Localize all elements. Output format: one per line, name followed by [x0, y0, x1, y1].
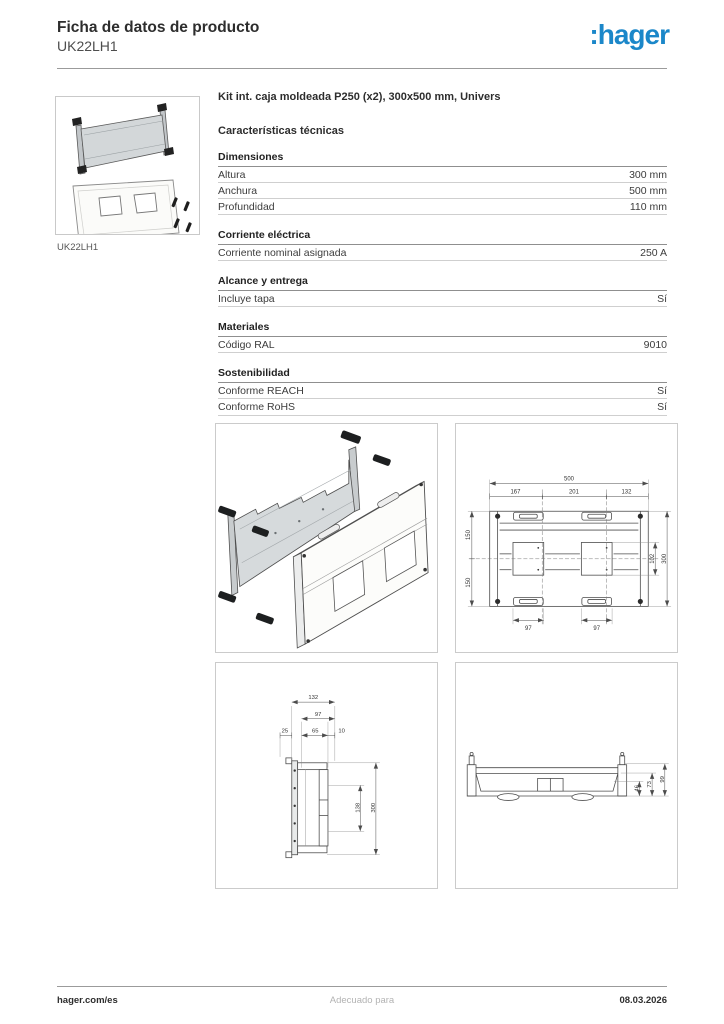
- side-view-drawing: 132 97 25 65 10: [216, 663, 437, 888]
- spec-label: Conforme REACH: [218, 385, 304, 397]
- dim-side-offset-right: 10: [338, 728, 345, 734]
- spec-row: Anchura 500 mm: [218, 183, 667, 199]
- spec-row: Profundidad 110 mm: [218, 199, 667, 215]
- footer-center-text: Adecuado para: [0, 995, 724, 1006]
- tech-section-materiales: Materiales Código RAL 9010: [218, 321, 667, 353]
- section-title: Corriente eléctrica: [218, 229, 667, 245]
- spec-label: Profundidad: [218, 201, 275, 213]
- dim-profile-depth1: 46: [634, 785, 640, 792]
- dim-total-width: 500: [564, 477, 575, 483]
- dim-inner-height: 102: [650, 554, 656, 564]
- dim-left-top: 150: [466, 529, 472, 540]
- spec-label: Anchura: [218, 185, 257, 197]
- illustration-front-view: 500 167 201 132 150 150: [455, 423, 678, 653]
- datasheet-page: Ficha de datos de producto UK22LH1 :hage…: [0, 0, 724, 1024]
- section-title: Dimensiones: [218, 151, 667, 167]
- spec-column: Kit int. caja moldeada P250 (x2), 300x50…: [218, 91, 667, 445]
- page-title: Ficha de datos de producto: [57, 20, 259, 36]
- spec-row: Código RAL 9010: [218, 337, 667, 353]
- dim-seg3: 132: [621, 489, 631, 495]
- tech-section-alcance: Alcance y entrega Incluye tapa Sí: [218, 275, 667, 307]
- tech-section-sostenibilidad: Sostenibilidad Conforme REACH Sí Conform…: [218, 367, 667, 415]
- dim-slot-left: 97: [525, 626, 532, 632]
- front-view-geometry: [470, 489, 660, 626]
- dim-seg1: 167: [511, 489, 521, 495]
- section-title: Materiales: [218, 321, 667, 337]
- dim-side-total-height: 300: [371, 802, 377, 813]
- product-thumbnail: [55, 96, 200, 235]
- spec-label: Conforme RoHS: [218, 401, 295, 413]
- product-code: UK22LH1: [57, 39, 118, 54]
- dim-profile-depth3: 99: [660, 776, 666, 783]
- dim-side-mid: 65: [312, 728, 319, 734]
- spec-label: Incluye tapa: [218, 293, 275, 305]
- illustrations-grid: 500 167 201 132 150 150: [215, 423, 678, 889]
- spec-value: 110 mm: [630, 201, 667, 213]
- dim-side-total-width: 132: [308, 695, 318, 701]
- dim-side-inner-height: 138: [355, 803, 361, 813]
- spec-row: Altura 300 mm: [218, 167, 667, 183]
- hager-logo: :hager: [589, 21, 669, 49]
- dim-slot-right: 97: [593, 626, 600, 632]
- spec-value: 250 A: [640, 247, 667, 259]
- mounting-plate-drawing: [72, 103, 174, 174]
- profile-view-drawing: 46 73 99: [456, 663, 677, 888]
- header-divider: [57, 68, 667, 69]
- footer-date: 08.03.2026: [619, 995, 667, 1006]
- spec-row: Corriente nominal asignada 250 A: [218, 245, 667, 261]
- dim-side-inner-width: 97: [315, 712, 322, 718]
- product-kit-image: [56, 97, 199, 234]
- side-view-geometry: [286, 758, 328, 858]
- spec-label: Código RAL: [218, 339, 275, 351]
- spec-value: Sí: [657, 293, 667, 305]
- section-title: Sostenibilidad: [218, 367, 667, 383]
- spec-value: 500 mm: [629, 185, 667, 197]
- tech-section-dimensiones: Dimensiones Altura 300 mm Anchura 500 mm…: [218, 151, 667, 215]
- dim-profile-depth2: 73: [647, 781, 653, 788]
- profile-view-geometry: [467, 752, 626, 800]
- illustration-profile-view: 46 73 99: [455, 662, 678, 889]
- spec-label: Altura: [218, 169, 245, 181]
- exploded-view-drawing: [216, 424, 437, 652]
- spec-value: 300 mm: [629, 169, 667, 181]
- section-title: Alcance y entrega: [218, 275, 667, 291]
- dim-seg2: 201: [569, 489, 580, 495]
- footer-divider: [57, 986, 667, 987]
- illustration-side-view: 132 97 25 65 10: [215, 662, 438, 889]
- cover-plate-drawing: [73, 180, 179, 234]
- spec-row: Conforme REACH Sí: [218, 383, 667, 399]
- spec-row: Incluye tapa Sí: [218, 291, 667, 307]
- illustration-exploded-view: [215, 423, 438, 653]
- tech-section-corriente: Corriente eléctrica Corriente nominal as…: [218, 229, 667, 261]
- spec-value: Sí: [657, 401, 667, 413]
- spec-value: 9010: [644, 339, 667, 351]
- tech-heading: Características técnicas: [218, 125, 667, 137]
- dim-total-height: 300: [662, 553, 668, 564]
- spec-row: Conforme RoHS Sí: [218, 399, 667, 415]
- thumbnail-caption: UK22LH1: [57, 242, 98, 253]
- front-view-drawing: 500 167 201 132 150 150: [456, 424, 677, 652]
- spec-label: Corriente nominal asignada: [218, 247, 346, 259]
- spec-value: Sí: [657, 385, 667, 397]
- dim-left-bottom: 150: [466, 577, 472, 588]
- dim-side-offset-left: 25: [282, 728, 289, 734]
- product-description: Kit int. caja moldeada P250 (x2), 300x50…: [218, 91, 667, 104]
